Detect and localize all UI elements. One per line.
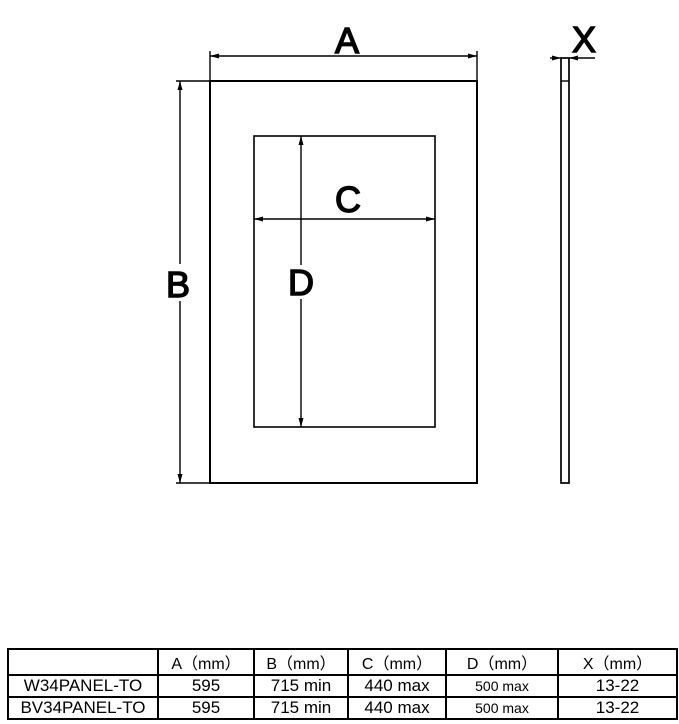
value-cell-a: 595 [158,697,254,719]
model-name-cell: BV34PANEL-TO [8,697,158,719]
panel-dimension-drawing-page: A B C D X [0,0,679,724]
dimension-b: B [166,81,210,483]
value-cell-x: 13-22 [558,675,677,697]
value-cell-b: 715 min [254,697,348,719]
header-cell-c: C（mm） [348,649,446,675]
value-cell-d: 500 max [446,697,558,719]
dim-label-a: A [335,20,359,61]
dimension-a: A [210,20,477,81]
header-cell-d: D（mm） [446,649,558,675]
value-cell-a: 595 [158,675,254,697]
panel-front-view [210,81,477,483]
value-cell-x: 13-22 [558,697,677,719]
panel-edge-outline [561,58,569,483]
spec-table: A（mm） B（mm） C（mm） D（mm） X（mm） W34PANEL-T… [7,648,678,720]
spec-table-header-row: A（mm） B（mm） C（mm） D（mm） X（mm） [8,649,677,675]
dimension-d: D [288,136,314,427]
dimension-x: X [550,19,596,60]
technical-drawing: A B C D X [0,0,679,640]
header-cell-a: A（mm） [158,649,254,675]
dim-label-x: X [572,19,596,60]
header-cell-b: B（mm） [254,649,348,675]
header-cell-x: X（mm） [558,649,677,675]
table-row: BV34PANEL-TO 595 715 min 440 max 500 max… [8,697,677,719]
dim-label-c: C [335,179,361,220]
model-name-cell: W34PANEL-TO [8,675,158,697]
table-row: W34PANEL-TO 595 715 min 440 max 500 max … [8,675,677,697]
header-cell-model [8,649,158,675]
value-cell-c: 440 max [348,675,446,697]
dimension-c: C [254,179,435,220]
dim-label-b: B [166,264,190,305]
value-cell-c: 440 max [348,697,446,719]
value-cell-d: 500 max [446,675,558,697]
panel-side-view [561,58,569,483]
dim-label-d: D [288,262,314,303]
panel-outer-outline [210,81,477,483]
value-cell-b: 715 min [254,675,348,697]
